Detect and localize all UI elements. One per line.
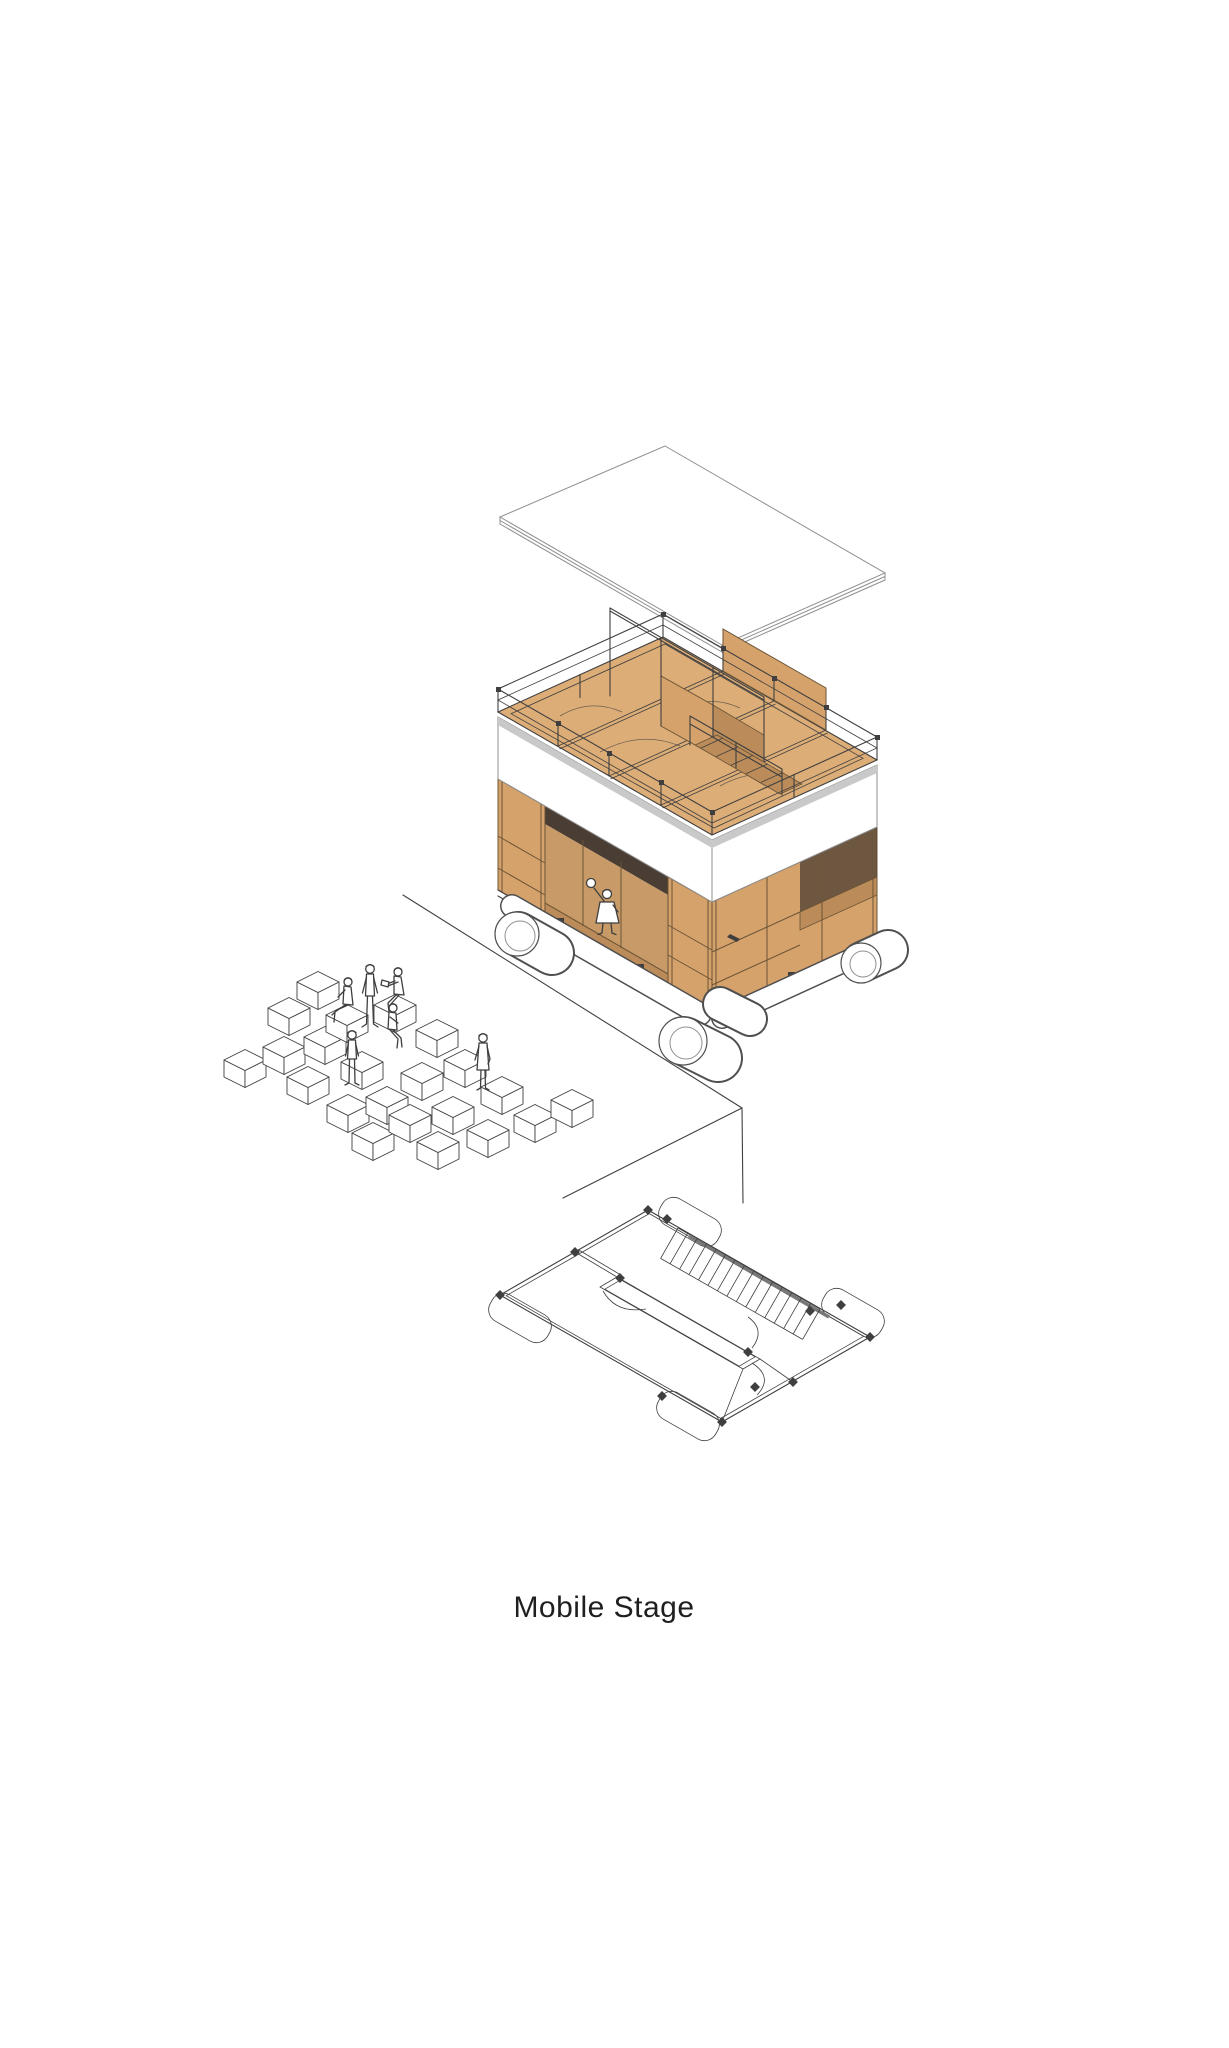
axonometric-drawing: Mobile Stage [0, 0, 1229, 2048]
audience-cube [401, 1063, 443, 1101]
roof-top-face [500, 446, 885, 645]
audience-cube [467, 1120, 509, 1158]
ground-line-left [563, 1108, 742, 1198]
audience-cube [224, 1050, 266, 1088]
audience-cube [268, 998, 310, 1036]
audience-cube [514, 1105, 556, 1143]
audience-cube [263, 1037, 305, 1075]
wheel-front-middle [659, 1017, 718, 1065]
audience-cube [432, 1097, 474, 1135]
audience-cube [327, 1095, 369, 1133]
audience-cube [416, 1020, 458, 1058]
audience-cubes [224, 972, 593, 1170]
audience-cube [551, 1090, 593, 1128]
roof-panel [500, 446, 885, 652]
wheel-rear-partial [720, 1004, 750, 1019]
drawing-sheet: Mobile Stage [0, 0, 1229, 2048]
wheel-right [841, 943, 888, 983]
audience-cube [352, 1123, 394, 1161]
plan-door-arcs [603, 1291, 764, 1395]
audience-cube [297, 972, 339, 1010]
floor-plan [484, 1193, 889, 1446]
drawing-title: Mobile Stage [513, 1591, 694, 1624]
plan-stair-hatch [661, 1228, 820, 1339]
audience-cube [481, 1077, 523, 1115]
plan-stair [661, 1228, 829, 1339]
plan-wheel-outlines [484, 1193, 889, 1446]
audience-cube [287, 1067, 329, 1105]
plan-stair-stringer [689, 1236, 829, 1317]
audience-cube [417, 1132, 459, 1170]
